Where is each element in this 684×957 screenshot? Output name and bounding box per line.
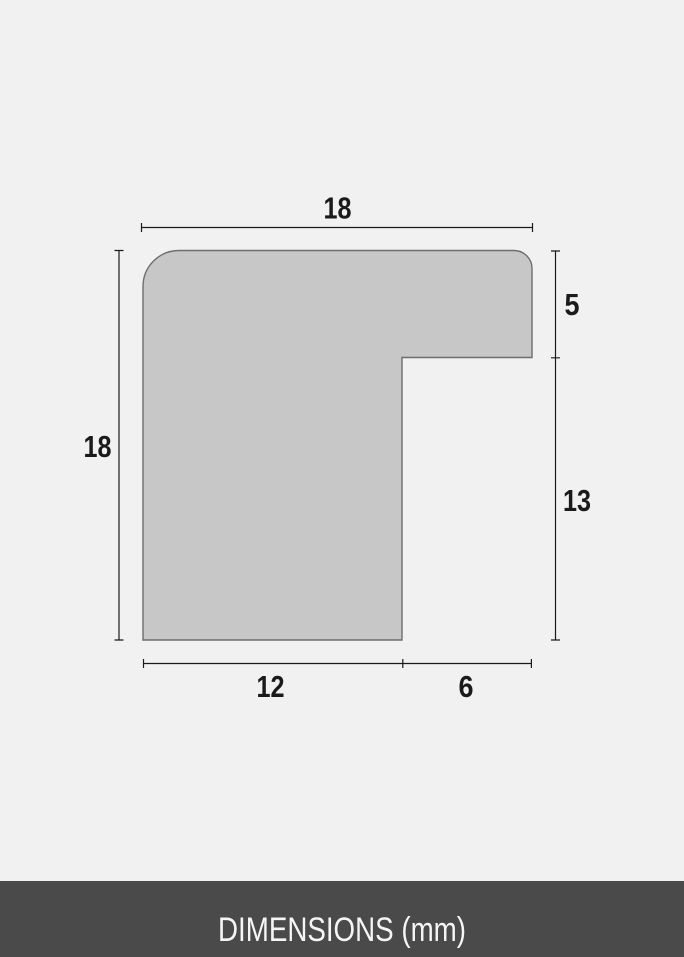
svg-text:6: 6 — [459, 670, 474, 704]
svg-text:5: 5 — [565, 288, 580, 322]
svg-text:18: 18 — [324, 192, 352, 226]
svg-text:12: 12 — [257, 670, 285, 704]
svg-text:DIMENSIONS (mm): DIMENSIONS (mm) — [218, 911, 466, 949]
svg-text:18: 18 — [84, 430, 112, 464]
svg-text:13: 13 — [563, 484, 591, 518]
